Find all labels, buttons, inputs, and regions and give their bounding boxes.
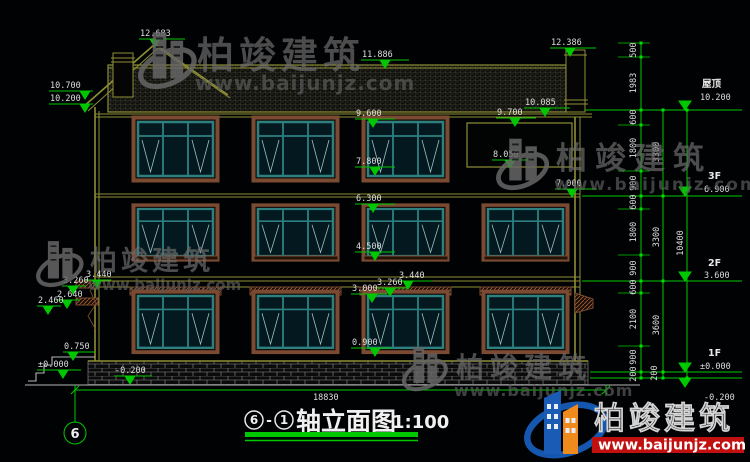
dim-f2-sill: 4.500 <box>356 242 382 252</box>
chain-inner-5: 600 <box>629 194 639 209</box>
chain-inner-0: 500 <box>629 42 639 57</box>
drawing-title: 轴立面图 <box>296 407 396 436</box>
drawing-scale: 1:100 <box>392 412 449 433</box>
watermark-brand: 柏竣建筑 <box>456 351 592 384</box>
chain-inner-8: 600 <box>629 279 639 294</box>
brand-logo-url: www.baijunjz.com <box>598 438 746 454</box>
chain-inner-6: 1800 <box>629 222 639 242</box>
dim-porch: 0.750 <box>64 342 90 352</box>
level-1f-label: 1F <box>708 348 721 359</box>
cad-canvas: 12.683 11.886 12.386 10.700 10.200 10.08… <box>0 0 750 462</box>
brand-logo: 柏竣建筑 www.baijunjz.com <box>521 390 746 462</box>
dim-belt-bottom: 3.260 <box>377 278 403 288</box>
level-2f-label: 2F <box>708 258 721 269</box>
window <box>254 118 338 181</box>
dim-left-eave-top: 10.700 <box>50 81 81 91</box>
dim-eave: 9.600 <box>356 109 382 119</box>
chain-inner-7: 900 <box>629 260 639 275</box>
dim-cap-lower-bottom: 2.460 <box>38 296 64 306</box>
dim-site-level: -0.200 <box>115 366 146 376</box>
level-labels: 屋顶 10.200 3F 6.900 2F 3.600 1F ±0.000 -0… <box>582 79 742 403</box>
windows-3f <box>134 118 573 181</box>
title-block: 6 - 1 轴立面图 1:100 <box>245 407 449 441</box>
title-axis-start: 6 <box>250 413 258 427</box>
dim-left-eave-bottom: 10.200 <box>50 94 81 104</box>
dimension-chains: 500 1983 600 1800 900 600 1800 900 600 2… <box>618 42 689 382</box>
dim-belt-top: 3.440 <box>399 271 425 281</box>
chain-inner-1: 1983 <box>629 73 639 93</box>
chain-inner-10: 900 <box>629 349 639 364</box>
dim-right-roof-top: 10.085 <box>525 98 556 108</box>
dim-f3-sill: 7.800 <box>356 157 382 167</box>
watermark-url: www.baijunjz.com <box>454 381 633 400</box>
level-1f-value: ±0.000 <box>700 362 731 372</box>
title-separator: - <box>266 413 272 429</box>
chain-mid-1: 3300 <box>652 227 662 247</box>
window <box>134 292 218 352</box>
level-roof-label: 屋顶 <box>702 79 722 90</box>
chain-outer-0: 10400 <box>676 230 686 256</box>
watermark-brand: 柏竣建筑 <box>90 245 214 277</box>
building-elevation <box>25 44 640 385</box>
chimney-left <box>111 53 135 97</box>
watermark-brand: 柏竣建筑 <box>556 141 712 177</box>
chimney-right <box>564 50 588 112</box>
window <box>254 205 338 260</box>
title-axis-end: 1 <box>280 413 288 427</box>
chain-inner-9: 2100 <box>629 309 639 329</box>
dim-ridge: 11.886 <box>362 50 393 60</box>
window <box>134 118 218 181</box>
window <box>254 292 338 352</box>
elevation-drawing: 12.683 11.886 12.386 10.700 10.200 10.08… <box>0 0 750 462</box>
dim-total-width: 18830 <box>313 393 339 403</box>
dim-right-roof-bottom: 9.700 <box>497 108 523 118</box>
watermark-url: www.baijunjz.com <box>88 276 241 294</box>
dim-f1-head: 3.000 <box>352 284 378 294</box>
chain-mid-3: 200 <box>650 365 660 380</box>
dim-f2-head: 6.300 <box>356 194 382 204</box>
windows-1f <box>130 287 571 352</box>
level-2f-value: 3.600 <box>704 271 730 281</box>
brand-logo-text: 柏竣建筑 <box>594 401 734 437</box>
dim-ground-zero: ±0.000 <box>38 360 69 370</box>
axis-bubble-number: 6 <box>70 427 79 442</box>
level-roof-value: 10.200 <box>700 93 731 103</box>
watermark-bottom-center: 柏竣建筑 www.baijunjz.com <box>400 347 634 400</box>
watermark-url: www.baijunjz.com <box>554 175 750 195</box>
dim-f1-sill: 0.900 <box>352 338 378 348</box>
window <box>484 205 568 260</box>
chain-inner-2: 600 <box>629 109 639 124</box>
watermark-top-right: 柏竣建筑 www.baijunjz.com <box>493 139 750 195</box>
chain-mid-2: 3600 <box>652 315 662 335</box>
dim-chimney-top: 12.386 <box>551 38 582 48</box>
chain-inner-11: 200 <box>629 366 639 381</box>
watermark-url: www.baijunjz.com <box>195 71 415 95</box>
window <box>484 292 568 352</box>
